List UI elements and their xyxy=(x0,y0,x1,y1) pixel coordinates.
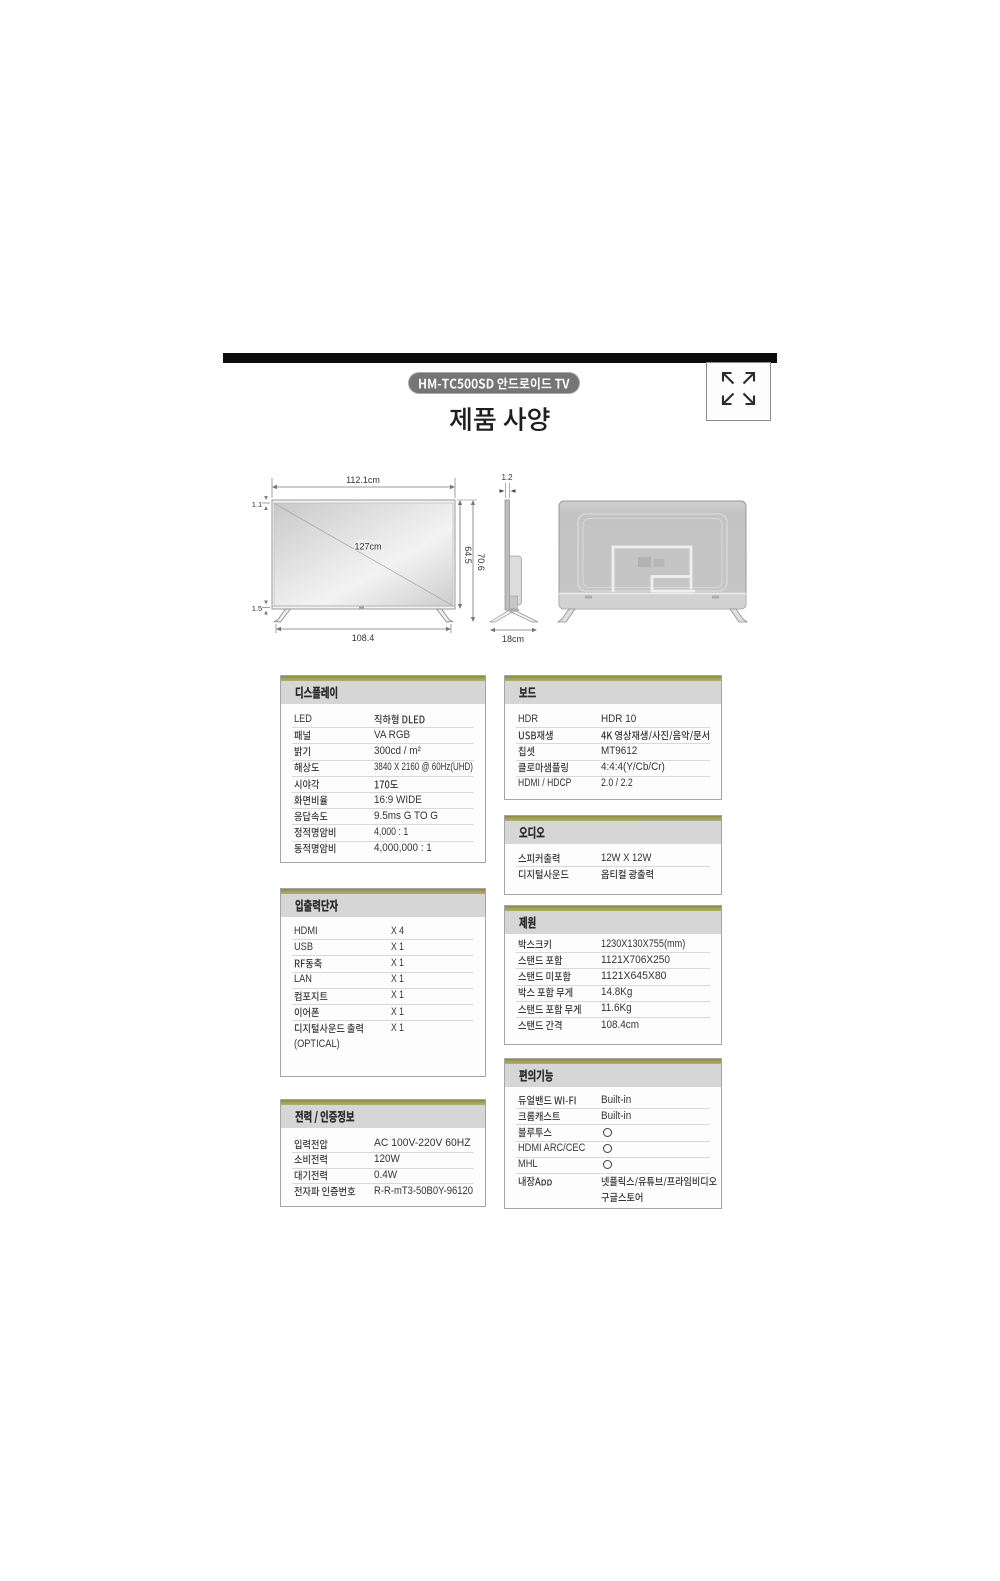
svg-text:112.1cm: 112.1cm xyxy=(346,475,380,485)
svg-text:70.6: 70.6 xyxy=(476,553,486,571)
svg-text:108.4: 108.4 xyxy=(352,633,375,643)
svg-text:18cm: 18cm xyxy=(502,634,524,644)
svg-text:64.5: 64.5 xyxy=(463,546,473,564)
svg-text:1.2: 1.2 xyxy=(501,473,513,482)
svg-text:127cm: 127cm xyxy=(354,542,381,552)
svg-text:1.5: 1.5 xyxy=(252,604,262,613)
svg-text:1.1: 1.1 xyxy=(252,500,262,509)
